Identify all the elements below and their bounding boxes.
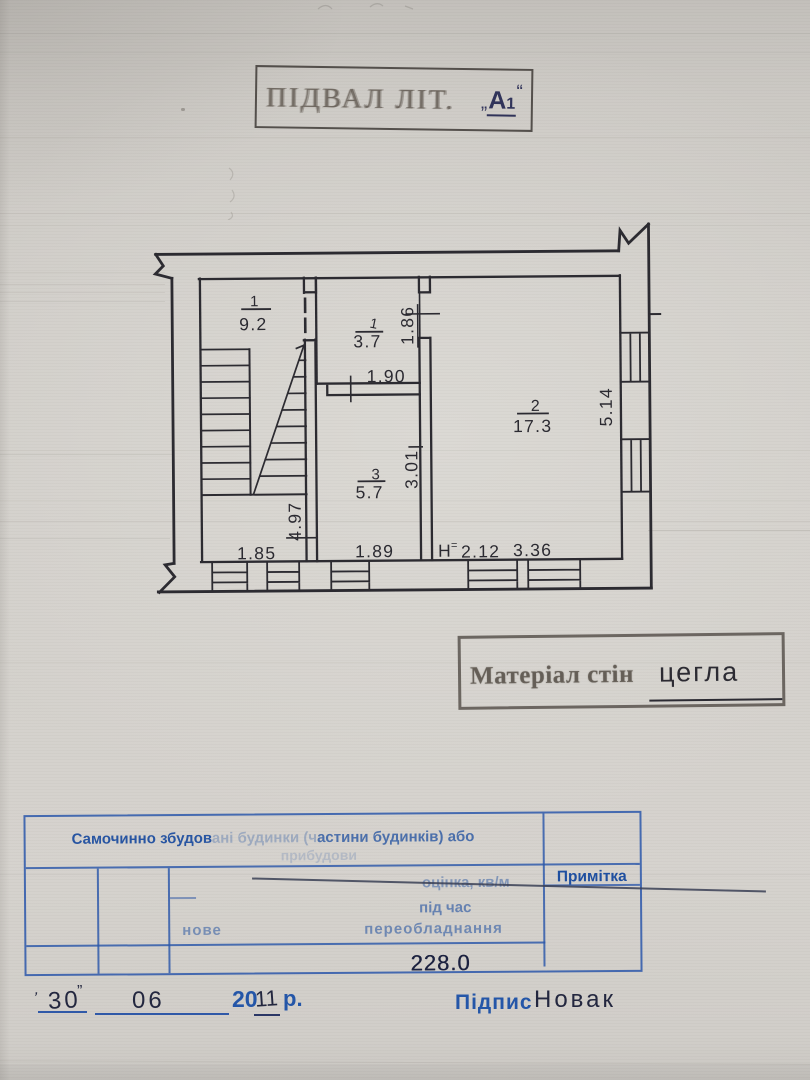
svg-text:9.2: 9.2 [239, 314, 267, 334]
svg-text:=: = [451, 540, 459, 552]
svg-text:3.01: 3.01 [401, 450, 421, 489]
svg-text:1: 1 [250, 293, 260, 310]
svg-text:17.3: 17.3 [513, 416, 552, 436]
svg-text:4.97: 4.97 [285, 502, 305, 541]
svg-text:2: 2 [531, 398, 541, 415]
svg-text:5.7: 5.7 [355, 482, 383, 502]
svg-text:1.86: 1.86 [397, 306, 417, 345]
svg-text:5.14: 5.14 [596, 387, 616, 426]
svg-text:1.89: 1.89 [355, 541, 394, 561]
svg-text:3.36: 3.36 [513, 540, 552, 560]
svg-text:Н: Н [438, 541, 452, 561]
svg-text:1.85: 1.85 [237, 543, 276, 563]
svg-text:3.7: 3.7 [353, 331, 381, 351]
svg-text:1: 1 [369, 315, 381, 332]
svg-text:2.12: 2.12 [461, 541, 500, 561]
svg-text:1.90: 1.90 [367, 366, 406, 386]
